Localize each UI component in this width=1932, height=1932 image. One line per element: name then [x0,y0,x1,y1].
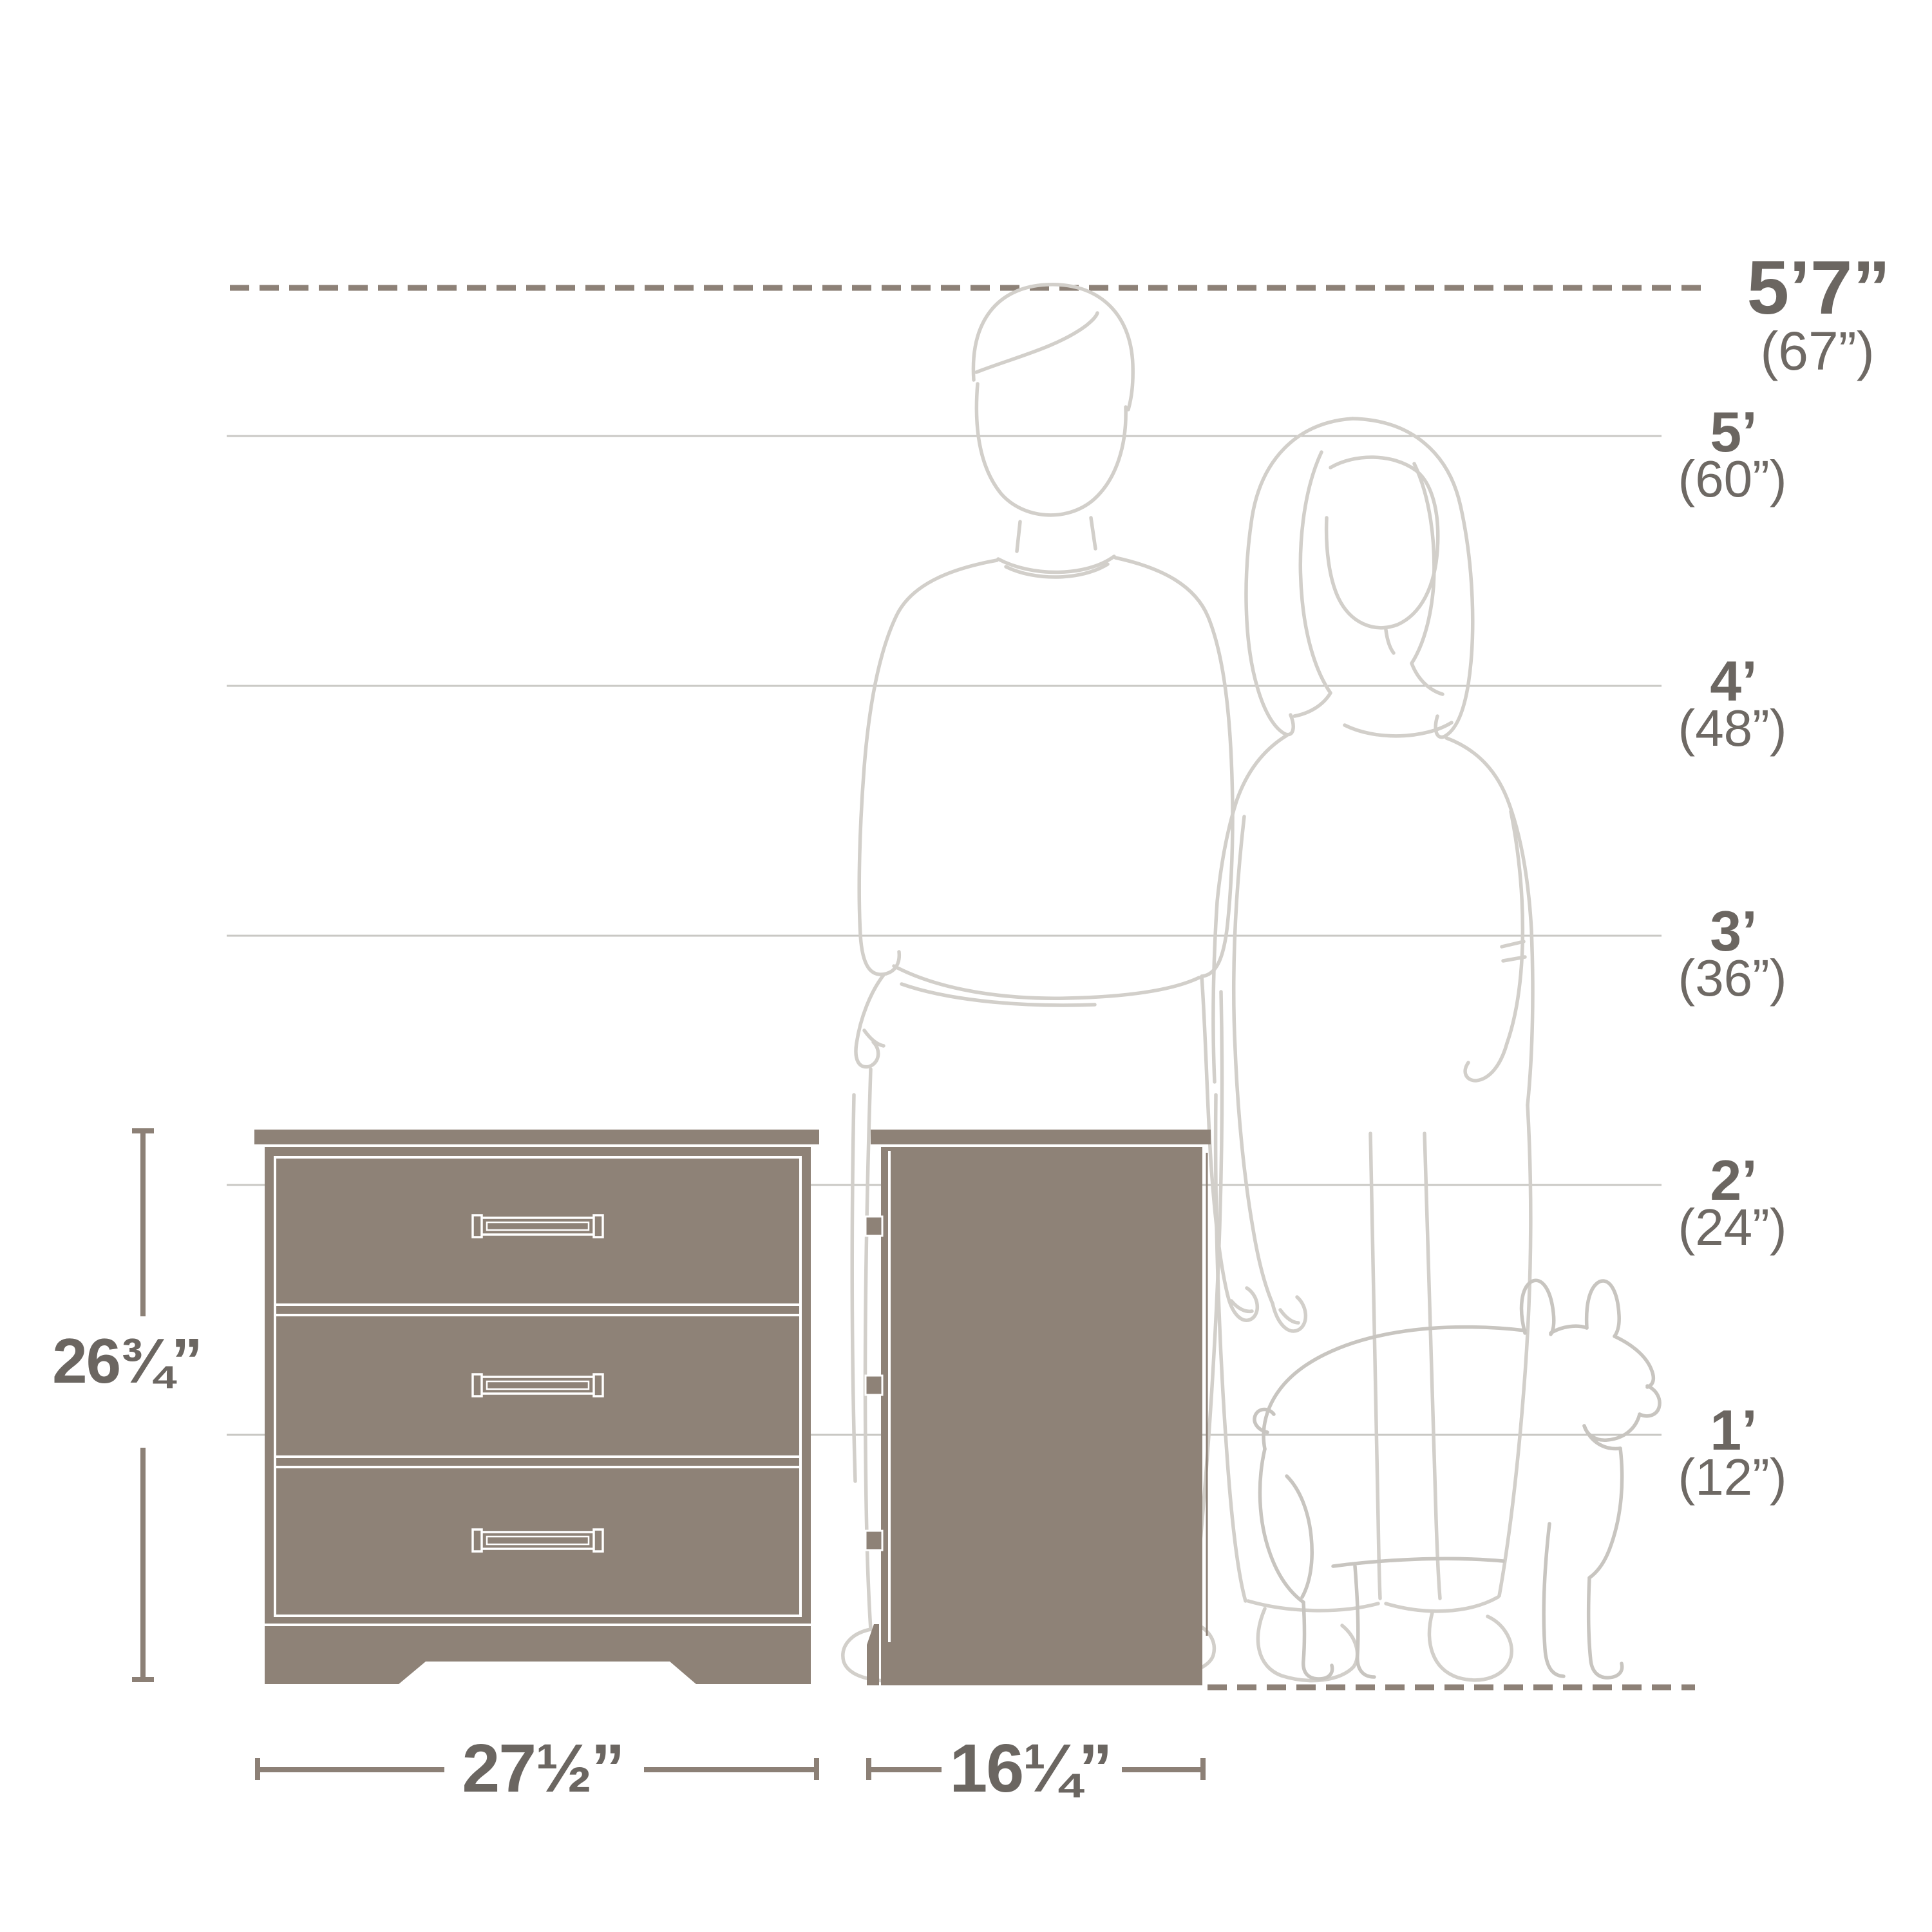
front-top-lid [254,1130,819,1144]
height-dimension-line [132,1131,154,1680]
ruler-label-1ft-inches: (12”) [1678,1452,1787,1503]
front-base-notch [398,1662,697,1685]
side-front-foot [867,1624,879,1685]
side-handle-tabs [866,1217,882,1550]
nightstand-side-view [866,1130,1211,1685]
ruler-label-2ft-inches: (24”) [1678,1202,1787,1253]
height-dimension-label: 26¾” [52,1329,202,1392]
ruler-label-max-inches: (67”) [1760,324,1874,378]
side-body [881,1147,1202,1685]
ruler-label-3ft-inches: (36”) [1678,952,1787,1004]
ruler-label-5ft-inches: (60”) [1678,453,1787,505]
nightstand-front-view [254,1130,819,1685]
ruler-label-4ft-inches: (48”) [1678,703,1787,754]
side-top-lid [871,1130,1211,1144]
depth-dimension-label: 16¼” [949,1734,1111,1803]
ruler-label-max-feet: 5’7” [1747,250,1890,326]
front-body [265,1147,811,1684]
dimension-diagram: 5’7” (67”) 5’ (60”) 4’ (48”) 3’ (36”) 2’… [0,0,1932,1932]
width-dimension-label: 27½” [462,1734,623,1803]
dog-outline [1255,1280,1660,1679]
diagram-artwork [0,0,1932,1932]
